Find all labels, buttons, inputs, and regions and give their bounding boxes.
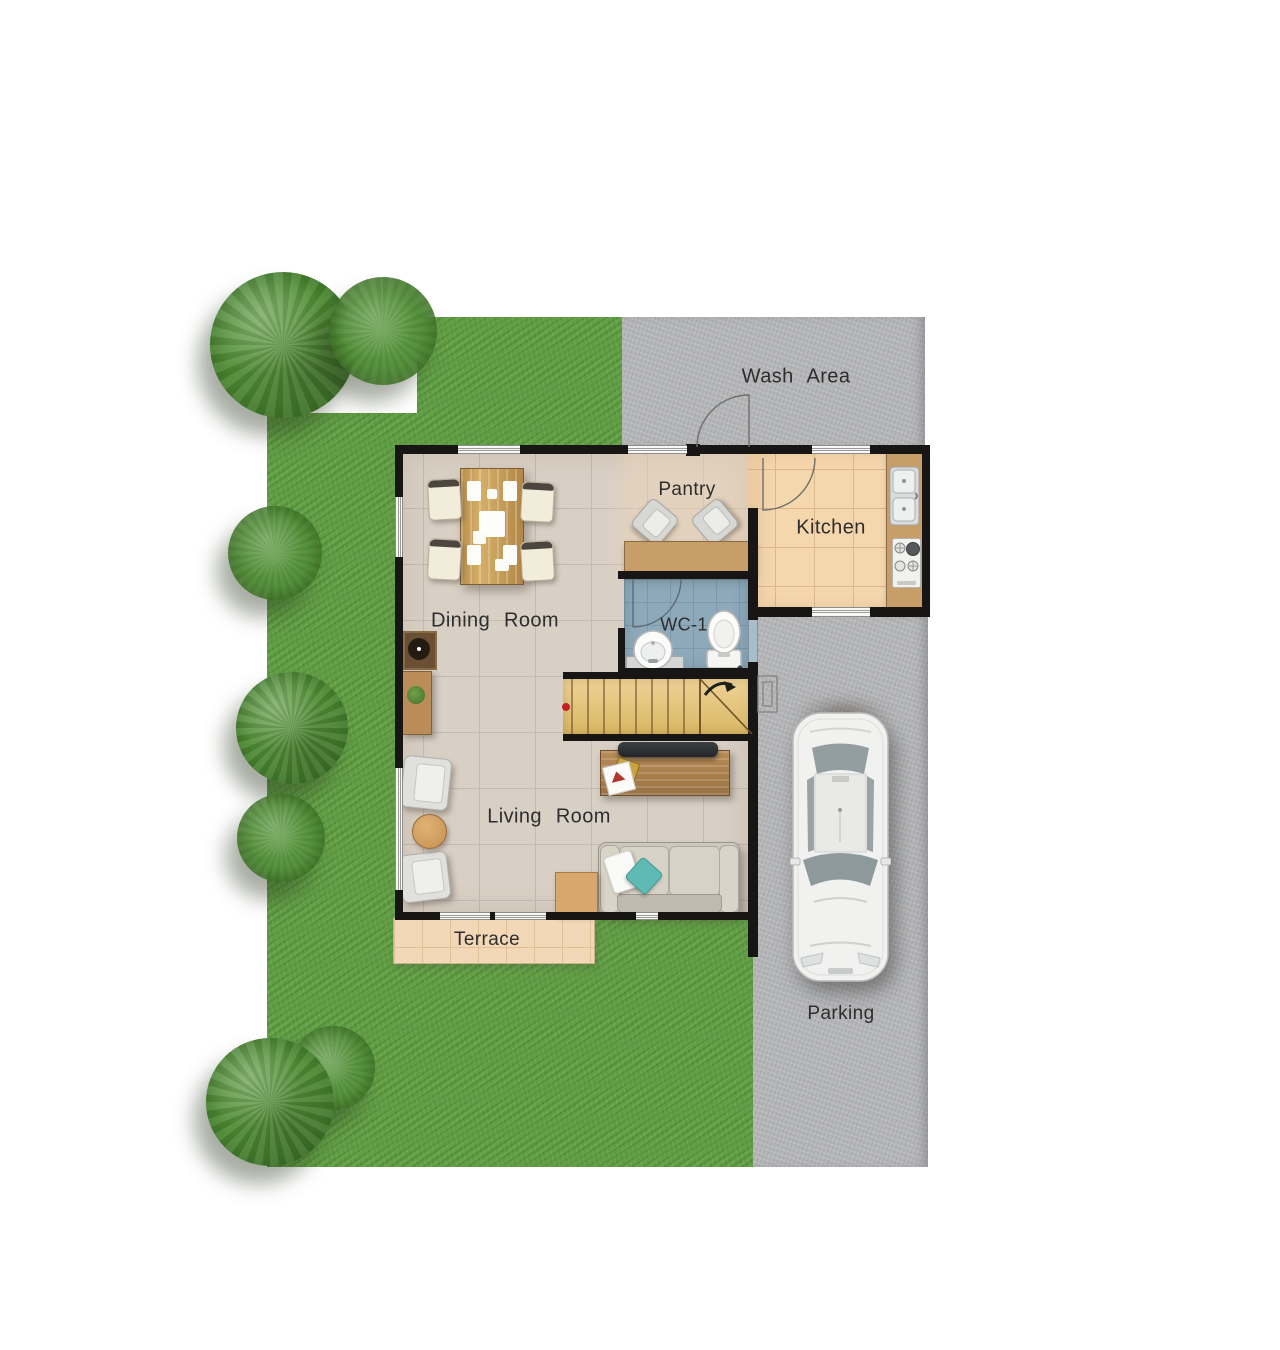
wall-segment [563,672,749,679]
floor-plan-canvas: Wash Area Pantry Kitchen Dining Room WC-… [0,0,1280,1350]
tree-icon [228,506,322,600]
wall-segment [618,628,625,675]
window-slot [636,912,658,920]
terrace-label: Terrace [454,929,520,951]
dining-chair [520,540,555,582]
tree-icon [329,277,437,385]
tree-icon [206,1038,334,1166]
pantry-label: Pantry [658,479,715,501]
window-slot [812,607,870,617]
parking-label: Parking [807,1003,874,1025]
sideboard-cabinet [402,671,432,735]
dining-chair [520,481,555,523]
dining-table [460,468,524,585]
armchair [397,850,451,904]
dining-table-settings [461,469,523,584]
armchair [399,755,452,812]
staircase [563,679,752,734]
wc-window [748,620,758,662]
tree-icon [236,672,348,784]
living-room-label: Living Room [487,806,611,829]
window-slot [395,497,403,557]
staircase-steps [571,679,701,734]
terrace-door-slot [495,912,546,920]
window-slot [440,912,490,920]
toilet-icon [704,608,744,672]
coffee-round-table [412,814,447,849]
sofa-cushion [669,846,720,896]
kitchen-label: Kitchen [796,517,866,540]
terrace-window-slot [395,768,403,890]
dining-chair [427,538,462,581]
sofa-armrest [719,845,739,913]
wall-segment [618,571,755,579]
window-slot [628,445,687,454]
wall-segment [563,734,752,741]
kitchen-sink-icon [889,466,920,526]
sofa-side-table [555,872,598,915]
car-icon [790,710,891,984]
tree-icon [237,794,325,882]
pantry-counter [624,541,754,574]
planter [403,631,437,670]
stove-icon [892,538,921,588]
dining-chair [427,478,462,521]
dining-room-label: Dining Room [431,610,559,633]
window-slot [812,445,870,454]
wash-area-label: Wash Area [742,366,851,389]
window-slot [458,445,520,454]
wall-pillar [686,444,700,456]
wall-segment [922,445,930,617]
tv-icon [618,742,718,757]
sofa-backrest [617,894,722,914]
wc1-label: WC-1 [660,615,708,636]
